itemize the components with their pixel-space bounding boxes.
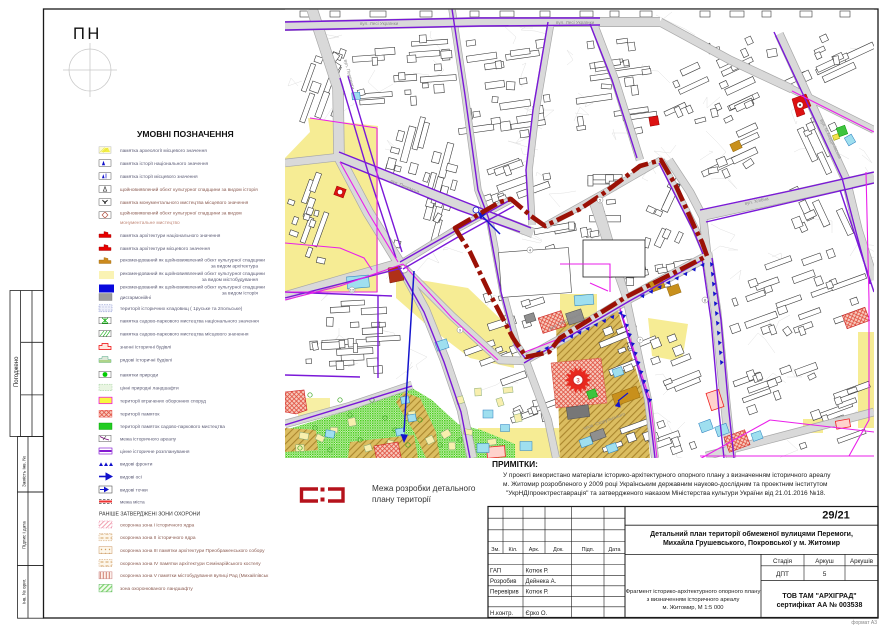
svg-text:цінне історичне розпланування: цінне історичне розпланування bbox=[120, 449, 190, 455]
svg-text:монументальне мистецтво: монументальне мистецтво bbox=[120, 221, 180, 226]
svg-text:видові фронти: видові фронти bbox=[120, 461, 153, 467]
svg-text:памятка історії місцевого знач: памятка історії місцевого значення bbox=[120, 174, 198, 180]
svg-text:ТОВ ТАМ "АРХІГРАД": ТОВ ТАМ "АРХІГРАД" bbox=[782, 593, 856, 600]
svg-text:видові точки: видові точки bbox=[120, 487, 148, 493]
svg-text:рекомендований як щойновиявлен: рекомендований як щойновиявлений обєкт к… bbox=[120, 257, 265, 264]
svg-text:Стадія: Стадія bbox=[773, 558, 792, 565]
svg-text:памятка архітектури національн: памятка архітектури національного значен… bbox=[120, 233, 221, 239]
svg-text:вул. Лесі Українки: вул. Лесі Українки bbox=[360, 21, 399, 26]
svg-text:території історичних кладовищ: території історичних кладовищ ( 1руське … bbox=[120, 306, 243, 312]
svg-text:Інв. № ориг.: Інв. № ориг. bbox=[22, 579, 27, 604]
svg-text:охоронна зона IV памятки архіт: охоронна зона IV памятки архітектури Сем… bbox=[120, 560, 261, 567]
svg-text:щойновиявлений обєкт культурно: щойновиявлений обєкт культурної спадщини… bbox=[120, 210, 242, 217]
svg-text:ПН: ПН bbox=[73, 25, 102, 43]
svg-text:м. Житомир, М 1:5 000: м. Житомир, М 1:5 000 bbox=[662, 605, 723, 611]
svg-text:Перевірив: Перевірив bbox=[490, 590, 519, 596]
svg-text:видові осі: видові осі bbox=[120, 474, 142, 480]
svg-text:території памяток садово-парко: території памяток садово-паркового мисте… bbox=[120, 424, 225, 430]
svg-text:Замість інв. №: Замість інв. № bbox=[22, 456, 27, 487]
svg-text:за видом історія: за видом історія bbox=[222, 291, 259, 297]
svg-text:Котюк Р.: Котюк Р. bbox=[526, 569, 549, 575]
svg-text:охоронна зона V памятки містоб: охоронна зона V памятки містобудування в… bbox=[120, 572, 269, 579]
svg-text:Аркуш: Аркуш bbox=[815, 558, 833, 565]
svg-text:рекомендований як щойновиявлен: рекомендований як щойновиявлений обєкт к… bbox=[120, 270, 265, 277]
svg-text:межа історичного ареалу: межа історичного ареалу bbox=[120, 436, 177, 442]
svg-text:Н.контр.: Н.контр. bbox=[490, 611, 513, 617]
svg-text:Дейнека А.: Дейнека А. bbox=[526, 578, 557, 585]
svg-text:території памяток: території памяток bbox=[120, 411, 160, 417]
svg-text:щойновиявлений обєкт культурно: щойновиявлений обєкт культурної спадщини… bbox=[120, 186, 258, 193]
svg-text:Детальний план території обмеж: Детальний план території обмеженої вулиц… bbox=[650, 530, 853, 538]
svg-text:памятка історії національного: памятка історії національного значення bbox=[120, 161, 208, 167]
svg-text:рядові історичні будівлі: рядові історичні будівлі bbox=[120, 357, 172, 363]
svg-text:Аркушів: Аркушів bbox=[850, 558, 874, 565]
svg-text:памятки природи: памятки природи bbox=[120, 373, 158, 378]
svg-text:Михайла Грушевського, Покровсь: Михайла Грушевського, Покровської у м. Ж… bbox=[663, 539, 840, 547]
svg-text:Межа розробки детального: Межа розробки детального bbox=[372, 484, 476, 493]
svg-text:ПРИМІТКИ:: ПРИМІТКИ: bbox=[492, 459, 538, 469]
svg-text:Док.: Док. bbox=[553, 547, 564, 553]
svg-text:охоронна зона І історичного яд: охоронна зона І історичного ядра bbox=[120, 522, 195, 528]
svg-text:межа міста: межа міста bbox=[120, 499, 145, 505]
svg-text:Фрагмент історико-архітектурн: Фрагмент історико-архітектурного опорног… bbox=[626, 589, 761, 595]
svg-text:зона охоронюваного ландшафту: зона охоронюваного ландшафту bbox=[120, 586, 193, 592]
svg-text:29/21: 29/21 bbox=[822, 510, 850, 522]
svg-text:вул. Лесі Українки: вул. Лесі Українки bbox=[556, 20, 595, 25]
svg-text:РАНІШЕ ЗАТВЕРДЖЕНІ ЗОНИ ОХОРОН: РАНІШЕ ЗАТВЕРДЖЕНІ ЗОНИ ОХОРОНИ bbox=[99, 512, 200, 518]
svg-text:12: 12 bbox=[350, 288, 355, 293]
svg-text:памятка архітектури місцевого: памятка архітектури місцевого значення bbox=[120, 246, 210, 252]
svg-text:ДПТ: ДПТ bbox=[776, 571, 789, 578]
svg-text:охоронна зона ІІ історичного я: охоронна зона ІІ історичного ядра bbox=[120, 535, 196, 541]
svg-text:Підп.: Підп. bbox=[582, 547, 595, 553]
svg-text:Зм.: Зм. bbox=[491, 547, 499, 553]
svg-text:Єрко О.: Єрко О. bbox=[526, 611, 548, 617]
svg-text:Погоджено: Погоджено bbox=[14, 356, 20, 387]
svg-text:території втрачених оборонних: території втрачених оборонних споруд bbox=[120, 398, 206, 404]
svg-text:Дата: Дата bbox=[609, 547, 621, 553]
svg-text:за видом архітектура: за видом архітектура bbox=[211, 264, 258, 270]
svg-text:цінні природні ландшафти: цінні природні ландшафти bbox=[120, 385, 179, 391]
svg-text:памятка археології місцевого з: памятка археології місцевого значення bbox=[120, 148, 207, 154]
svg-text:памятка садово-паркового мисте: памятка садово-паркового мистецтва націо… bbox=[120, 318, 259, 324]
svg-text:дисгармонійні: дисгармонійні bbox=[120, 294, 151, 301]
svg-text:ГАП: ГАП bbox=[490, 569, 501, 575]
svg-text:"УкрНДІпроектреставрація" та з: "УкрНДІпроектреставрація" та затверджено… bbox=[506, 489, 826, 497]
svg-text:памятка монументального мистец: памятка монументального мистецтва місцев… bbox=[120, 200, 249, 206]
svg-text:значні історичні будівлі: значні історичні будівлі bbox=[120, 344, 171, 350]
svg-text:формат А3: формат А3 bbox=[851, 620, 877, 626]
svg-text:сертифікат АА № 003538: сертифікат АА № 003538 bbox=[777, 601, 863, 609]
svg-text:Арк.: Арк. bbox=[529, 547, 539, 553]
svg-text:м. Житомир розробленого у 2009: м. Житомир розробленого у 2009 році Укра… bbox=[503, 480, 828, 488]
svg-text:рекомендований як щойновиявлен: рекомендований як щойновиявлений обєкт к… bbox=[120, 284, 265, 291]
svg-text:Підпис і дата: Підпис і дата bbox=[22, 521, 27, 549]
svg-text:охоронна зона ІІІ памятки архі: охоронна зона ІІІ памятки архітектури Пр… bbox=[120, 548, 265, 554]
svg-text:плану території: плану території bbox=[372, 495, 432, 504]
svg-text:Кіл.: Кіл. bbox=[509, 547, 518, 553]
svg-text:памятка садово-паркового мисте: памятка садово-паркового мистецтва місце… bbox=[120, 331, 249, 337]
svg-text:5: 5 bbox=[823, 571, 827, 578]
svg-text:за видом містобудування: за видом містобудування bbox=[202, 277, 259, 283]
svg-text:Котюк Р.: Котюк Р. bbox=[526, 590, 549, 596]
svg-text:з визначенням історичного ареа: з визначенням історичного ареалу bbox=[647, 597, 740, 603]
svg-text:Розробив: Розробив bbox=[490, 579, 516, 585]
svg-text:УМОВНІ ПОЗНАЧЕННЯ: УМОВНІ ПОЗНАЧЕННЯ bbox=[137, 129, 234, 139]
svg-text:У проекті використано матеріал: У проекті використано матеріали історико… bbox=[503, 471, 831, 479]
